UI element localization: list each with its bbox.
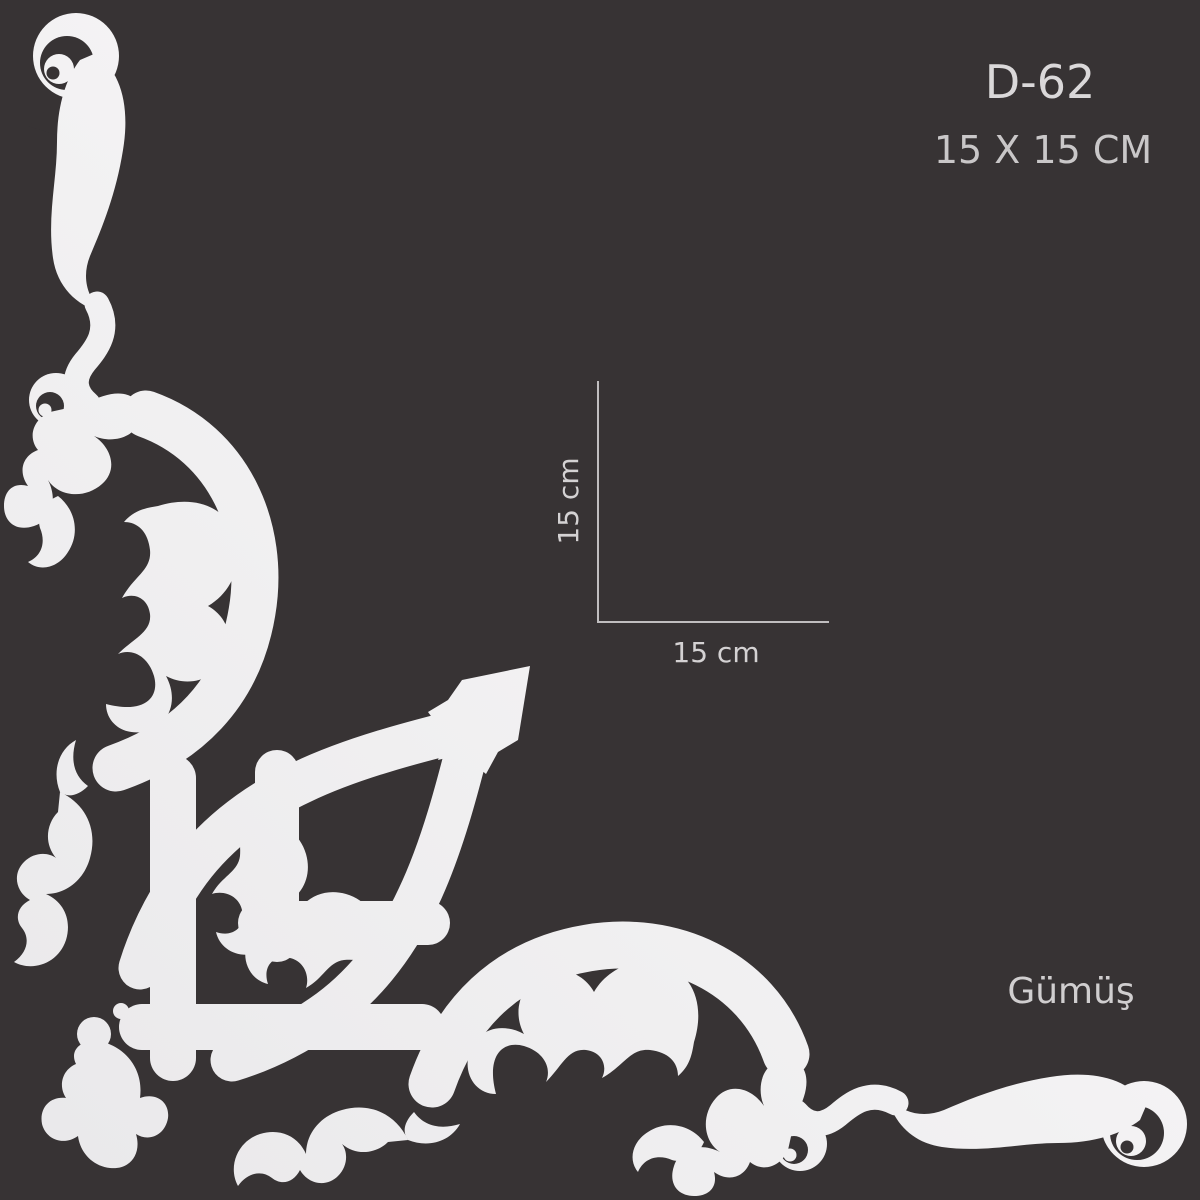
product-code: D-62 (940, 57, 1140, 108)
width-dimension-label: 15 cm (666, 638, 766, 669)
corner-flourish-ornament-icon (0, 0, 1200, 1200)
product-color-name: Gümüş (971, 972, 1171, 1012)
product-image: D-62 15 X 15 CM Gümüş 15 cm 15 cm (0, 0, 1200, 1200)
width-dimension-line (597, 621, 829, 623)
height-dimension-line (597, 381, 599, 621)
product-size: 15 X 15 CM (920, 130, 1166, 172)
height-dimension-label: 15 cm (554, 453, 582, 549)
